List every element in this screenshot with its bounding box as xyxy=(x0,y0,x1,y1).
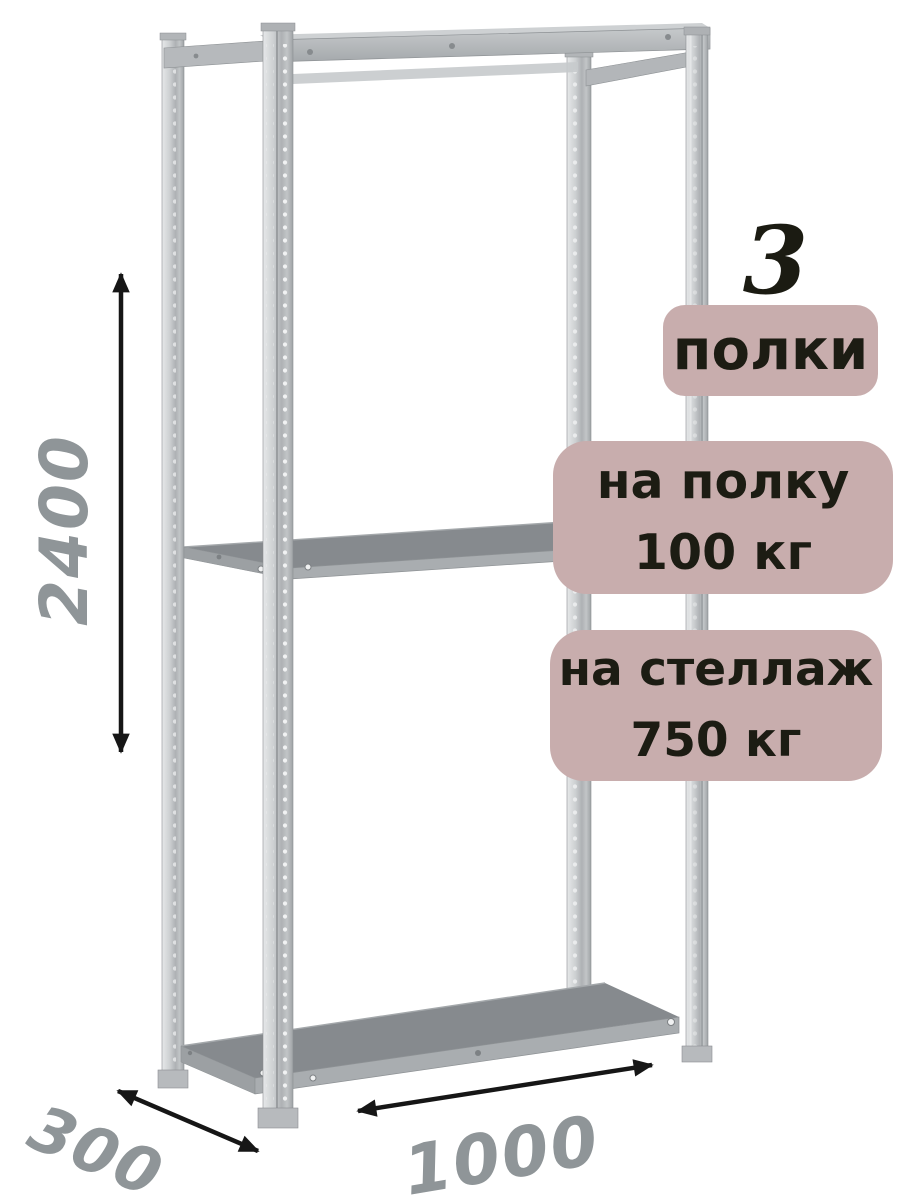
post-back-left xyxy=(158,33,188,1088)
height-dimension-label: 2400 xyxy=(17,370,113,690)
shelf-bottom xyxy=(181,983,679,1094)
shelf-load-line2: 100 кг xyxy=(634,518,812,589)
product-image: 2400 300 1000 3 полки на полку 100 кг на… xyxy=(0,0,900,1200)
shelf-load-badge: на полку 100 кг xyxy=(553,441,893,594)
shelving-rack-illustration xyxy=(0,0,900,1200)
shelf-count-badge-label: полки xyxy=(673,318,868,383)
shelf-count-badge: полки xyxy=(663,305,878,396)
rack-load-line2: 750 кг xyxy=(631,706,802,777)
shelf-count-number: 3 xyxy=(718,214,833,308)
post-front-left xyxy=(258,23,298,1128)
shelf-load-line1: на полку xyxy=(597,447,850,518)
shelf-top xyxy=(164,23,710,86)
rack-load-badge: на стеллаж 750 кг xyxy=(550,630,882,781)
rack-load-line1: на стеллаж xyxy=(559,635,874,706)
